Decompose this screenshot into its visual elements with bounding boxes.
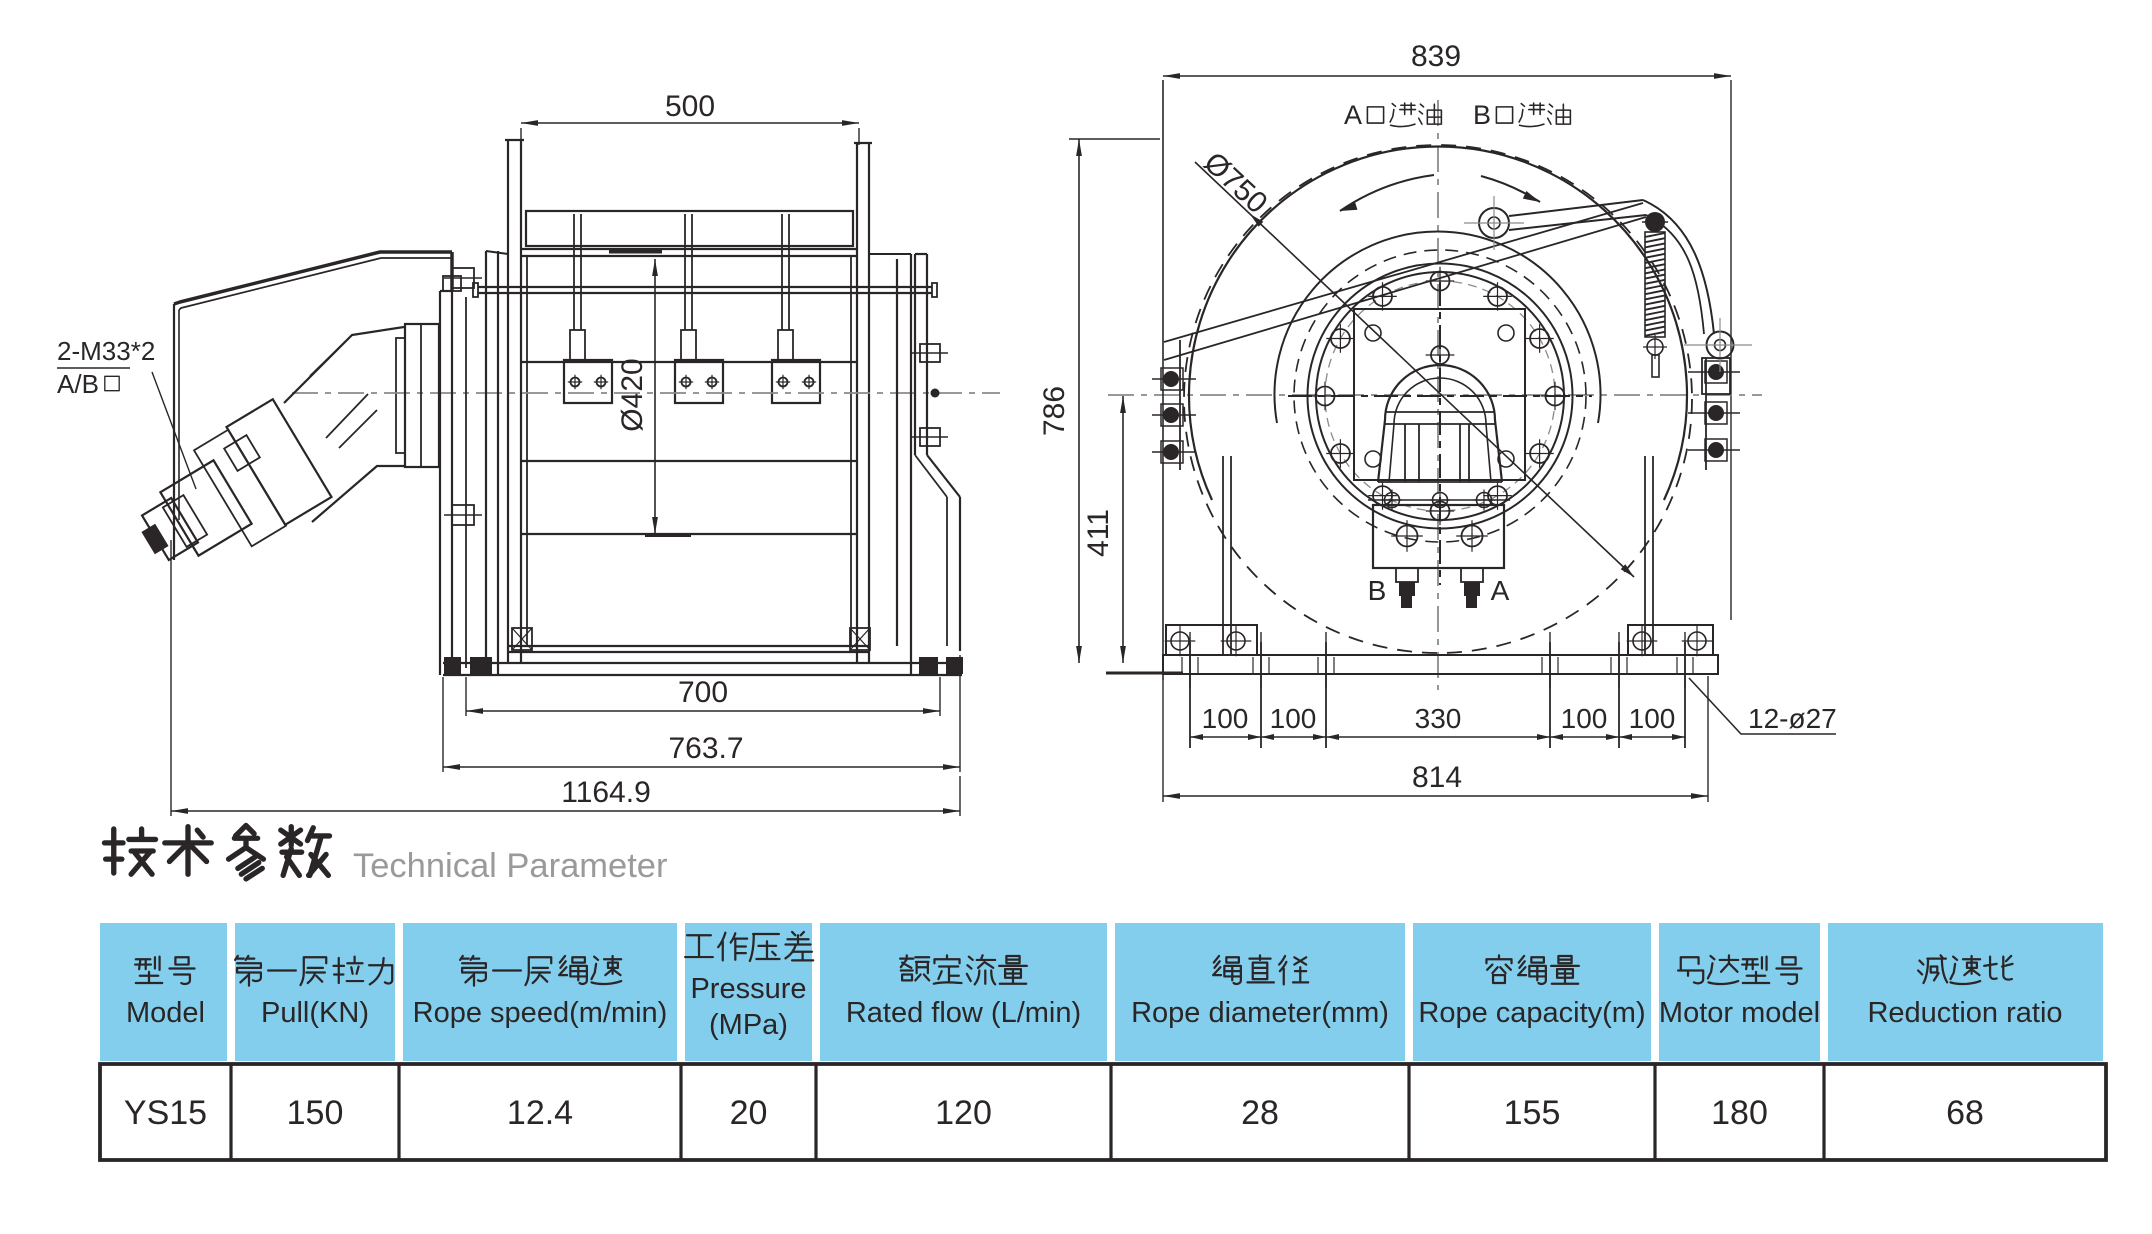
svg-text:Pull(KN): Pull(KN) [261,997,369,1029]
svg-text:Technical Parameter: Technical Parameter [353,847,667,885]
svg-text:12-ø27: 12-ø27 [1748,703,1837,734]
svg-text:150: 150 [287,1094,344,1132]
svg-text:YS15: YS15 [124,1094,207,1132]
svg-text:Rated flow (L/min): Rated flow (L/min) [846,997,1081,1029]
svg-text:814: 814 [1412,761,1462,794]
svg-text:100: 100 [1270,703,1317,734]
svg-text:A: A [1491,575,1510,606]
svg-text:100: 100 [1561,703,1608,734]
svg-text:Pressure: Pressure [690,973,806,1005]
svg-text:Rope diameter(mm): Rope diameter(mm) [1131,997,1389,1029]
svg-text:Model: Model [126,997,205,1029]
svg-text:Rope capacity(m): Rope capacity(m) [1418,997,1645,1029]
svg-text:Rope speed(m/min): Rope speed(m/min) [413,997,668,1029]
svg-text:330: 330 [1415,703,1462,734]
svg-text:Reduction ratio: Reduction ratio [1867,997,2062,1029]
svg-text:100: 100 [1629,703,1676,734]
svg-text:B: B [1368,575,1387,606]
svg-text:(MPa): (MPa) [709,1009,788,1041]
svg-text:A/B: A/B [57,369,99,399]
svg-text:700: 700 [678,676,728,709]
svg-text:2-M33*2: 2-M33*2 [57,336,155,366]
svg-text:100: 100 [1202,703,1249,734]
svg-text:20: 20 [730,1094,768,1132]
svg-text:A: A [1344,100,1362,130]
svg-text:B: B [1473,100,1491,130]
svg-text:1164.9: 1164.9 [561,776,651,809]
svg-text:155: 155 [1504,1094,1561,1132]
svg-text:120: 120 [935,1094,992,1132]
svg-text:180: 180 [1711,1094,1768,1132]
svg-text:Ø420: Ø420 [616,358,649,431]
svg-text:839: 839 [1411,40,1461,73]
svg-text:500: 500 [665,90,715,123]
svg-text:12.4: 12.4 [507,1094,573,1132]
svg-text:28: 28 [1241,1094,1279,1132]
svg-text:Motor model: Motor model [1659,997,1820,1029]
svg-text:68: 68 [1946,1094,1984,1132]
svg-text:786: 786 [1038,386,1071,436]
svg-text:411: 411 [1082,509,1115,557]
svg-text:763.7: 763.7 [668,732,743,765]
